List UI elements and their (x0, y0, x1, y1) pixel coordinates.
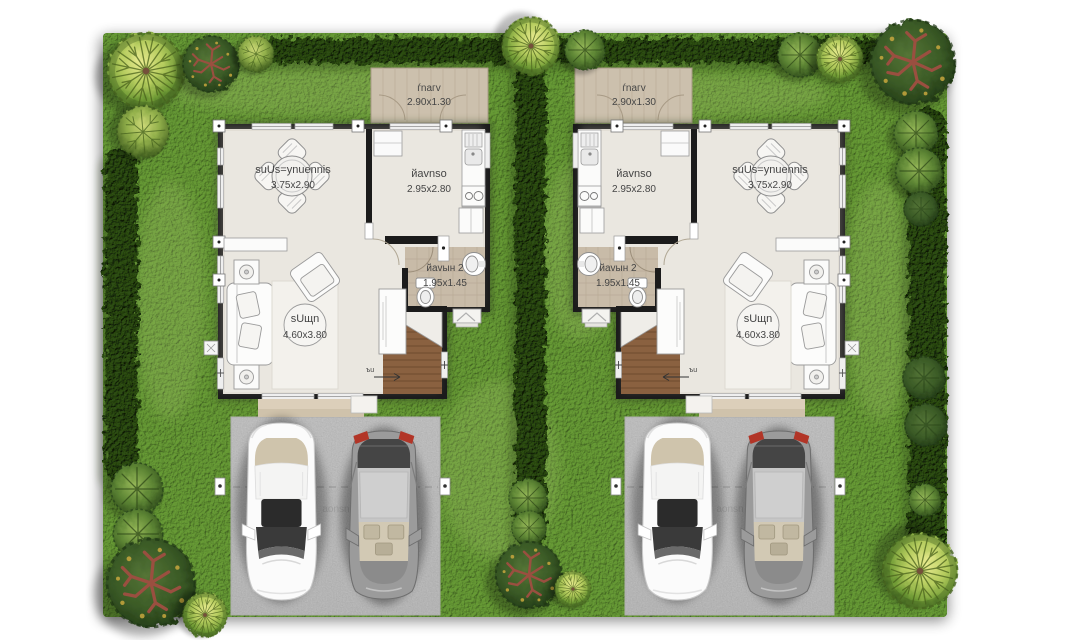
svg-text:suUs=ynuennis: suUs=ynuennis (732, 164, 808, 176)
svg-text:3.75x2.90: 3.75x2.90 (748, 180, 792, 191)
svg-text:3.75x2.90: 3.75x2.90 (271, 180, 315, 191)
svg-text:sUщn: sUщn (744, 313, 773, 325)
svg-text:sUщn: sUщn (291, 313, 320, 325)
svg-text:4.60x3.80: 4.60x3.80 (283, 330, 327, 341)
svg-text:ъu: ъu (689, 367, 697, 374)
svg-text:йavnsо: йavnsо (616, 168, 652, 180)
svg-text:2.90x1.30: 2.90x1.30 (407, 97, 451, 108)
svg-text:ѓnагv: ѓnагv (622, 83, 645, 94)
svg-text:2.90x1.30: 2.90x1.30 (612, 97, 656, 108)
svg-text:2.95x2.80: 2.95x2.80 (612, 184, 656, 195)
svg-text:йavын 2: йavын 2 (426, 263, 464, 274)
svg-text:1.95x1.45: 1.95x1.45 (423, 278, 467, 289)
svg-text:ѓnагv: ѓnагv (417, 83, 440, 94)
svg-text:2.95x2.80: 2.95x2.80 (407, 184, 451, 195)
svg-text:йavын 2: йavын 2 (599, 263, 637, 274)
svg-text:suUs=ynuennis: suUs=ynuennis (255, 164, 331, 176)
svg-text:4.60x3.80: 4.60x3.80 (736, 330, 780, 341)
svg-text:ъu: ъu (366, 367, 374, 374)
svg-text:1.95x1.45: 1.95x1.45 (596, 278, 640, 289)
svg-text:йavnsо: йavnsо (411, 168, 447, 180)
